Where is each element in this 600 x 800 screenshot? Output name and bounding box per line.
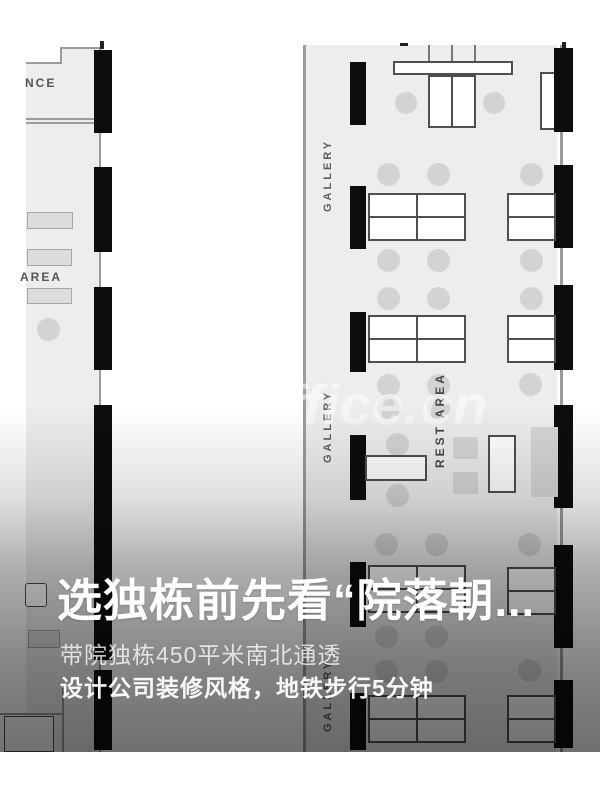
- listing-subtitle-2: 设计公司装修风格，地铁步行5分钟: [60, 669, 434, 703]
- listing-cover-photo[interactable]: NCE AREA: [0, 0, 600, 752]
- footer-whitespace: [0, 752, 600, 800]
- listing-subtitle-1: 带院独栋450平米南北通透: [60, 636, 341, 670]
- listing-title: 选独栋前先看“院落朝...: [57, 578, 577, 623]
